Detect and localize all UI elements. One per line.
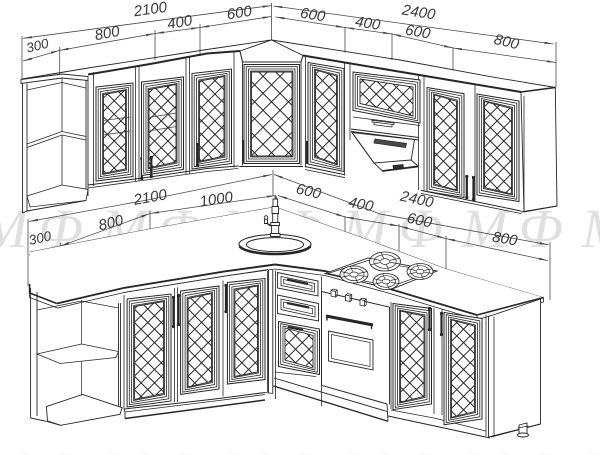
svg-text:МФ: МФ [221,442,335,455]
svg-text:МФ: МФ [461,442,575,455]
svg-text:МФ: МФ [101,442,215,455]
svg-text:МФ: МФ [341,442,455,455]
svg-text:МФ: МФ [0,442,95,455]
svg-text:МФ: МФ [581,198,600,259]
svg-text:МФ: МФ [461,198,575,259]
svg-text:МФ: МФ [581,442,600,455]
